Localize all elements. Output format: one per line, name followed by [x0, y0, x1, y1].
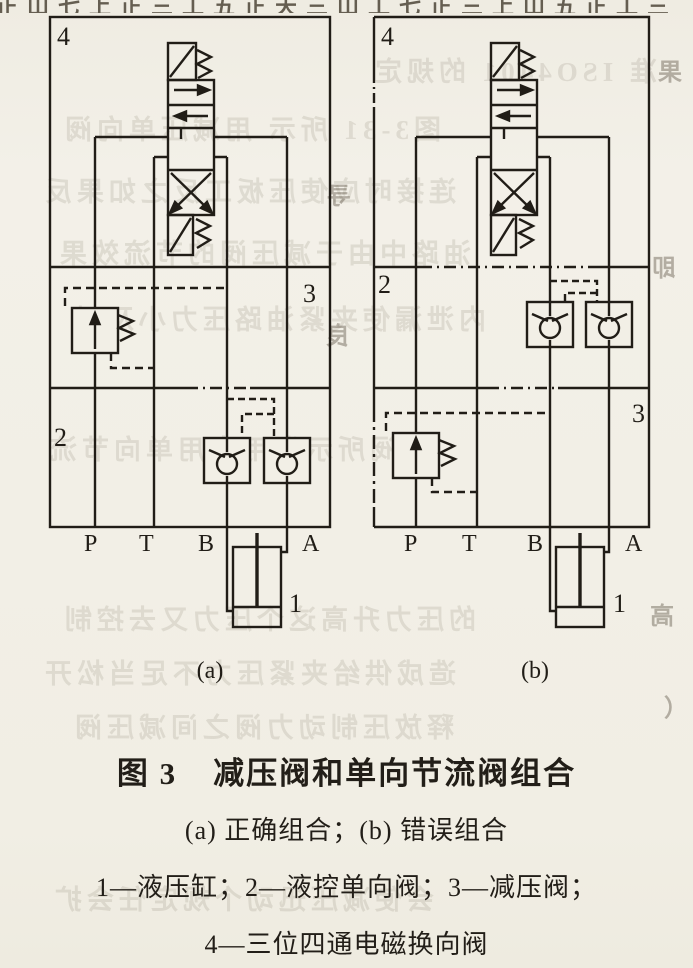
pilot-line-dashed: [386, 413, 550, 431]
figure-caption: 图 3 减压阀和单向节流阀组合 (a) 正确组合；(b) 错误组合 1—液压缸；…: [0, 748, 693, 961]
callout-4-a: 4: [57, 22, 70, 52]
solenoid-slash-icon: [170, 46, 194, 77]
caption-title-line: 图 3 减压阀和单向节流阀组合: [0, 748, 693, 793]
callout-2-b: 2: [378, 270, 391, 300]
arrowhead-icon: [198, 86, 209, 95]
port-label-t-a: T: [139, 531, 154, 558]
solenoid-slash-icon: [493, 218, 514, 252]
drain-line-dashed: [432, 478, 477, 492]
arrowhead-icon: [521, 86, 532, 95]
callout-1-b: 1: [613, 589, 626, 619]
diagram-b-label: (b): [505, 658, 565, 685]
arrowhead-icon: [175, 112, 186, 121]
port-label-b-b: B: [527, 531, 543, 558]
scanned-book-page: 正山七上正三工五正天三山工七正三上山五正工三 准 ISO4401 的规定 图3-…: [0, 0, 693, 968]
port-label-a-a: A: [302, 531, 319, 558]
port-label-p-b: P: [404, 531, 417, 558]
reducing-valve-symbol-b: [386, 413, 550, 492]
figure-title: 减压阀和单向节流阀组合: [213, 748, 576, 793]
arrowhead-icon: [498, 112, 509, 121]
pilot-line-dashed: [565, 293, 597, 302]
spring-icon: [118, 315, 134, 341]
solenoid-slash-icon: [170, 218, 191, 252]
callout-3-b: 3: [632, 399, 645, 429]
caption-subtitle: (a) 正确组合；(b) 错误组合: [0, 810, 693, 847]
bleedthrough-spot: （: [664, 688, 688, 723]
bleedthrough-row: 释放压制动力阀之间减压阀: [70, 706, 454, 745]
port-label-p-a: P: [84, 531, 97, 558]
cylinder-symbol-a: [227, 527, 287, 627]
spring-icon: [439, 440, 455, 466]
check-ball-icon: [599, 318, 619, 338]
port-label-b-a: B: [198, 531, 214, 558]
valve-body: [168, 80, 214, 215]
pilot-check-valves-symbol-a: [204, 399, 310, 483]
diagram-a-label: (a): [180, 658, 240, 685]
callout-1-a: 1: [289, 589, 302, 619]
figure-number: 图 3: [117, 748, 177, 793]
drain-line-dashed: [111, 353, 154, 368]
pilot-check-valves-symbol-b: [527, 281, 632, 347]
directional-valve-symbol-b: [491, 43, 537, 255]
spring-icon: [197, 50, 211, 78]
spring-icon: [520, 50, 534, 78]
cylinder-symbol-b: [550, 527, 609, 627]
pilot-line-dashed: [242, 414, 274, 438]
check-ball-icon: [277, 454, 297, 474]
spring-icon: [196, 219, 210, 248]
callout-2-a: 2: [54, 423, 67, 453]
callout-4-b: 4: [381, 22, 394, 52]
callout-3-a: 3: [303, 279, 316, 309]
spring-icon: [519, 219, 533, 248]
pilot-line-dashed: [65, 288, 227, 306]
check-ball-icon: [540, 318, 560, 338]
bleedthrough-row: 造成供给夹紧压力不足当松开: [40, 652, 456, 691]
port-label-t-b: T: [462, 531, 477, 558]
pilot-line-dashed: [227, 399, 274, 438]
directional-valve-symbol-a: [168, 43, 214, 255]
caption-legend-line2: 4—三位四通电磁换向阀: [0, 924, 693, 961]
hydraulic-circuit-drawing: [0, 0, 693, 650]
pilot-line-dashed: [550, 281, 597, 302]
port-label-a-b: A: [625, 531, 642, 558]
check-ball-icon: [217, 454, 237, 474]
reducing-valve-symbol-a: [65, 288, 227, 368]
caption-legend-line1: 1—液压缸；2—液控单向阀；3—减压阀；: [0, 867, 693, 904]
solenoid-slash-icon: [493, 46, 517, 77]
valve-body: [491, 80, 537, 215]
